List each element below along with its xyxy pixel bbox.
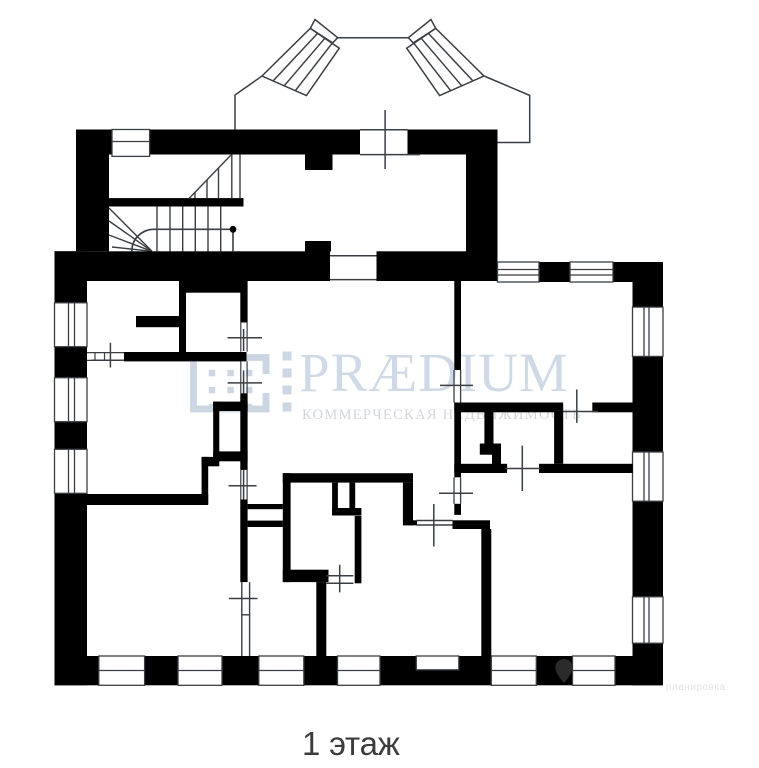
svg-text:планировка: планировка xyxy=(666,682,726,693)
svg-text:1 этаж: 1 этаж xyxy=(302,725,400,762)
svg-text:PRÆDIUM: PRÆDIUM xyxy=(299,342,569,403)
